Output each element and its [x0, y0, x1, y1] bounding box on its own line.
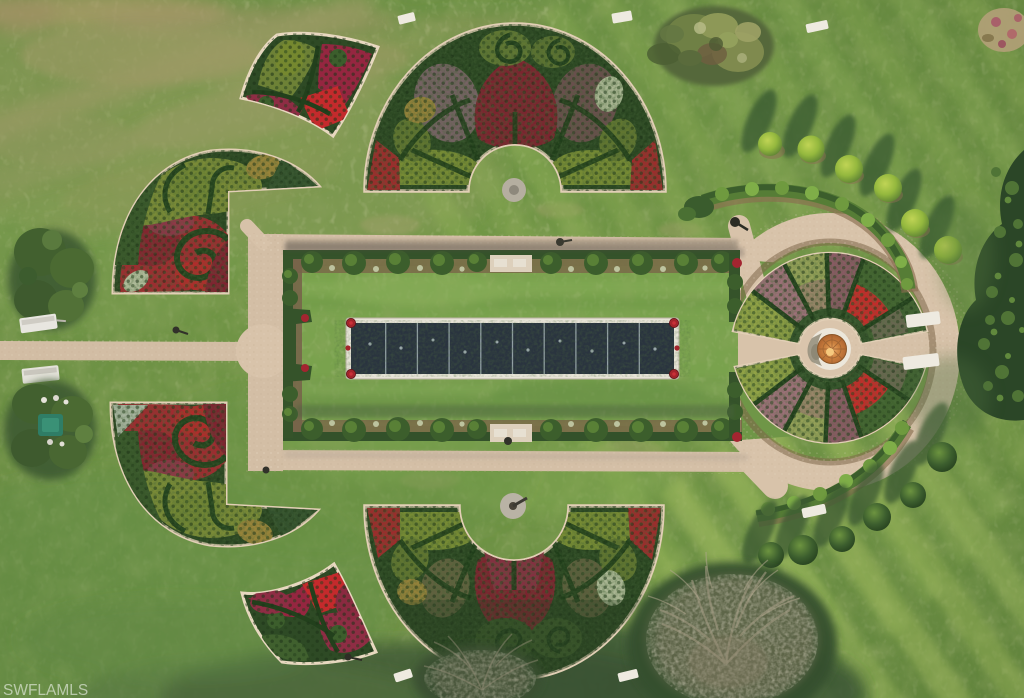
- svg-text:SWFLAMLS: SWFLAMLS: [3, 682, 88, 698]
